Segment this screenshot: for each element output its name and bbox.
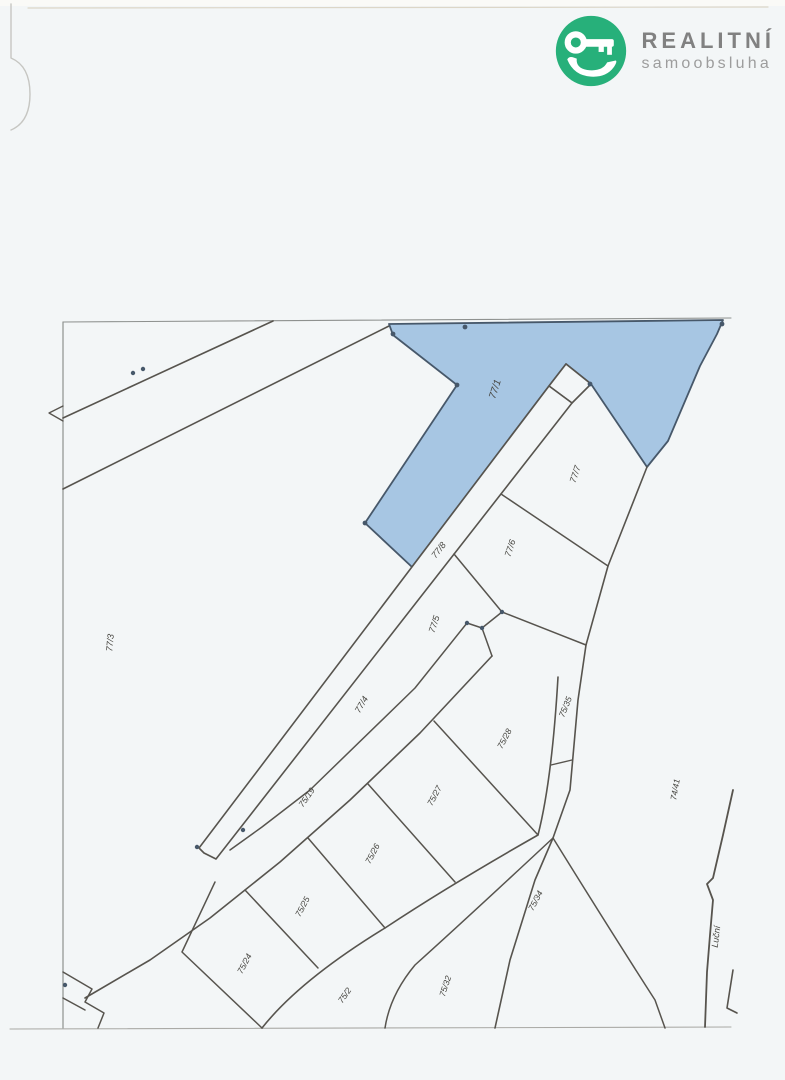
parcel-boundary-line [482,628,492,656]
parcel-label-77-3: 77/3 [104,634,115,652]
parcel-boundary-line [85,656,492,998]
parcel-label-77-7: 77/7 [568,463,583,484]
road-boundary-line [63,321,273,418]
parcel-label-75-28: 75/28 [495,727,514,751]
page-curl-artifact [11,4,30,130]
parcel-label-75-2: 75/2 [336,985,354,1005]
highlighted-parcel-77-1 [365,320,723,567]
street-boundary-line [727,970,737,1013]
map-border-bottom [10,1027,731,1029]
parcel-boundary-line [551,760,572,765]
building-outline [63,998,85,1010]
parcel-boundary-curve [553,838,665,1028]
parcel-label-75-24: 75/24 [235,952,254,976]
parcel-strip-77-8 [199,386,572,859]
parcel-label-75-25: 75/25 [293,895,312,919]
boundary-tick [49,406,63,421]
road-boundary-line [63,326,389,489]
parcel-boundary-line [502,612,586,645]
parcel-label-77-6: 77/6 [503,538,518,558]
parcel-label-lu-n-: Luční [710,924,723,949]
scan-line-artifact [28,7,768,8]
building-outline [63,972,104,1028]
scanned-page: REALITNÍ samoobsluha [0,0,785,1080]
parcel-label-75-26: 75/26 [363,842,382,866]
parcel-label-75-27: 75/27 [425,784,444,808]
parcel-label-75-19: 75/19 [296,785,317,808]
parcel-label-77-4: 77/4 [353,694,370,714]
parcel-label-75-35: 75/35 [557,695,574,719]
parcel-boundary-zigzag [467,612,502,628]
parcel-boundary-line [501,494,608,566]
parcel-boundary-line [495,467,647,1028]
parcel-boundary-line [434,721,538,835]
street-boundary-line [705,790,733,1027]
parcel-label-75-34: 75/34 [526,889,545,913]
parcel-boundary-line [368,784,455,882]
cadastral-map: 77/177/777/677/877/577/477/375/1975/2875… [0,0,785,1080]
parcel-boundary-curve [385,838,553,1028]
parcel-label-74-41: 74/41 [668,778,682,801]
parcel-boundary-line [454,554,502,612]
parcel-label-77-5: 77/5 [427,613,442,634]
parcel-label-75-32: 75/32 [437,974,453,998]
